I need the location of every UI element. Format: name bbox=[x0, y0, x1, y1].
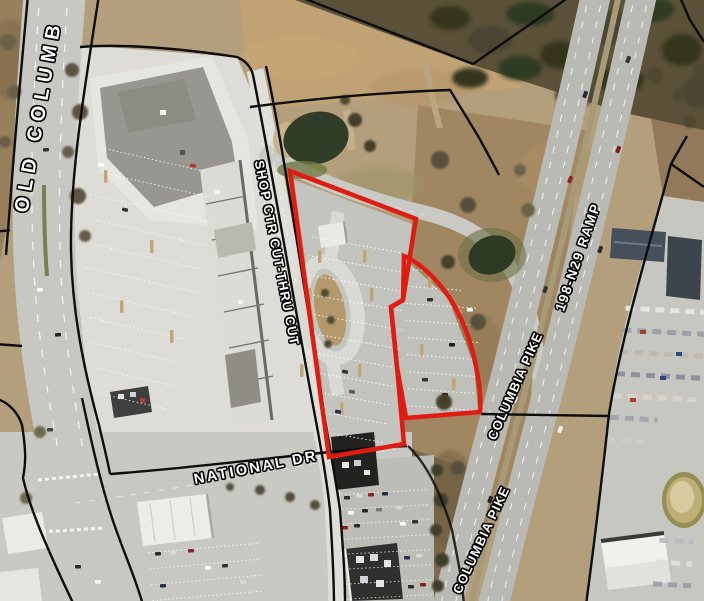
industrial-shed-b bbox=[666, 236, 702, 300]
aerial-map-canvas[interactable]: OLD COLUMB SHOP CTR CUT-THRU CUT NATIONA… bbox=[0, 0, 704, 601]
bottom-dark-building bbox=[345, 543, 403, 601]
red-parcel-building bbox=[318, 222, 347, 248]
sand-pit bbox=[662, 472, 704, 528]
small-pond bbox=[458, 228, 526, 282]
aerial-imagery bbox=[0, 0, 704, 601]
